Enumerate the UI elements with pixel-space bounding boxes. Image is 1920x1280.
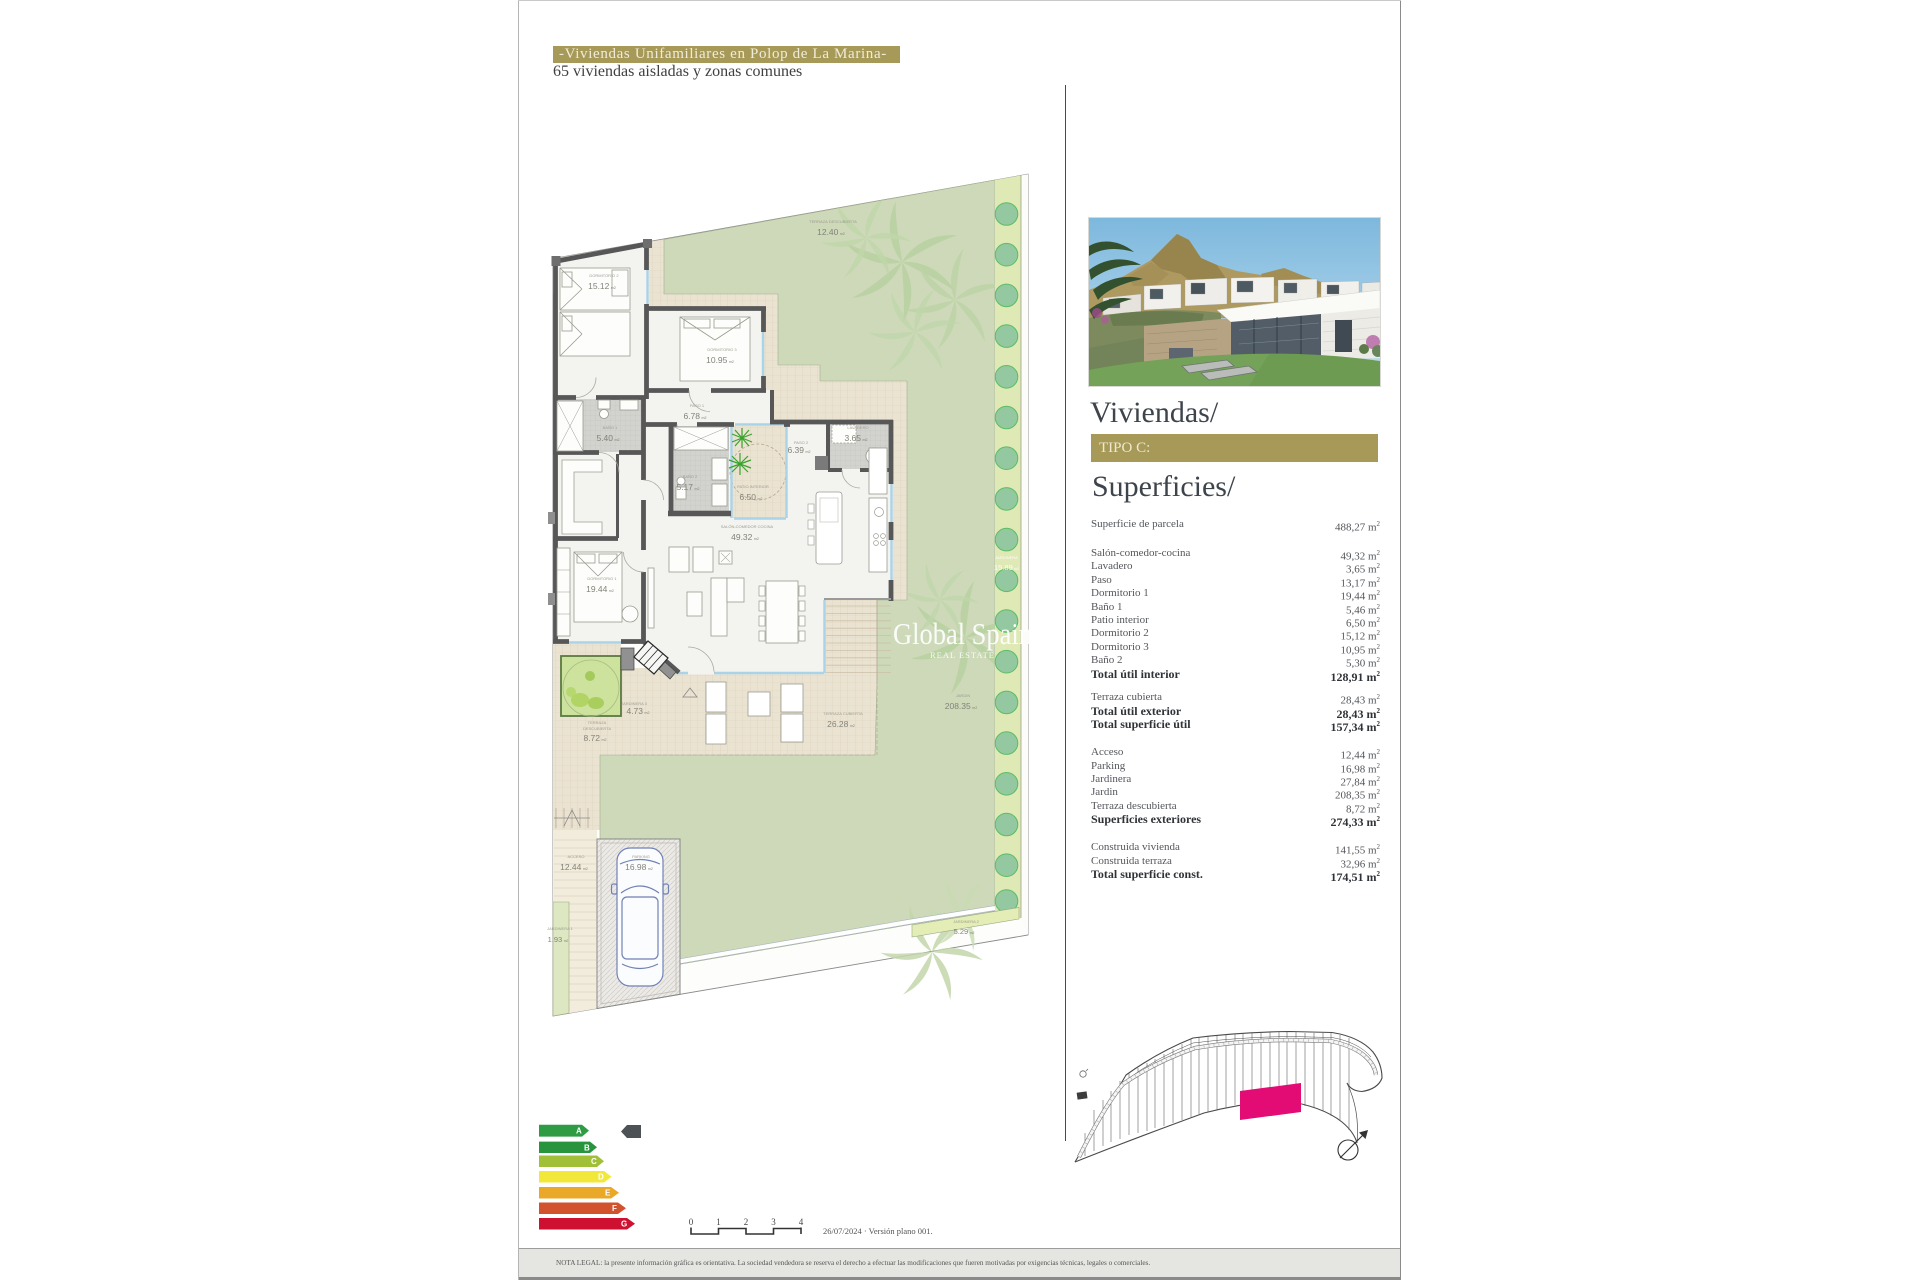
- svg-text:1: 1: [716, 1217, 721, 1227]
- svg-text:BAÑO 2: BAÑO 2: [683, 474, 698, 479]
- svg-text:4: 4: [799, 1217, 804, 1227]
- svg-text:REAL ESTATE: REAL ESTATE: [930, 650, 994, 660]
- svg-text:2: 2: [744, 1217, 749, 1227]
- svg-text:G: G: [621, 1220, 627, 1229]
- svg-text:PATIO INTERIOR: PATIO INTERIOR: [737, 484, 769, 489]
- svg-text:DORMITORIO 1: DORMITORIO 1: [587, 576, 617, 581]
- svg-text:JARDINERA 2: JARDINERA 2: [953, 919, 980, 924]
- svg-text:C: C: [591, 1157, 597, 1166]
- svg-text:0: 0: [689, 1217, 694, 1227]
- svg-text:F: F: [612, 1204, 617, 1213]
- svg-text:TERRAZA DESCUBIERTA: TERRAZA DESCUBIERTA: [809, 219, 857, 224]
- svg-text:PASO 1: PASO 1: [690, 403, 705, 408]
- svg-text:3: 3: [771, 1217, 776, 1227]
- svg-text:A: A: [576, 1127, 582, 1136]
- svg-text:DORMITORIO 3: DORMITORIO 3: [707, 347, 737, 352]
- svg-text:BAÑO 1: BAÑO 1: [603, 425, 618, 430]
- svg-text:JARDINERA: JARDINERA: [995, 555, 1018, 560]
- svg-text:Global Spain: Global Spain: [893, 616, 1032, 651]
- svg-text:D: D: [598, 1173, 604, 1182]
- svg-text:E: E: [605, 1189, 611, 1198]
- svg-text:JARDINERA 1: JARDINERA 1: [547, 926, 574, 931]
- svg-text:B: B: [584, 1143, 590, 1152]
- svg-text:ACCESO: ACCESO: [568, 854, 585, 859]
- svg-text:PARKING: PARKING: [632, 854, 650, 859]
- svg-text:TERRAZA CUBIERTA: TERRAZA CUBIERTA: [823, 711, 863, 716]
- svg-text:DESCUBIERTA: DESCUBIERTA: [583, 726, 611, 731]
- svg-text:SALÓN-COMEDOR COCINA: SALÓN-COMEDOR COCINA: [721, 524, 774, 529]
- svg-text:LAVADERO: LAVADERO: [847, 425, 868, 430]
- svg-text:TERRAZA: TERRAZA: [588, 720, 607, 725]
- svg-text:JARDIN: JARDIN: [956, 693, 971, 698]
- svg-text:DORMITORIO 2: DORMITORIO 2: [589, 273, 619, 278]
